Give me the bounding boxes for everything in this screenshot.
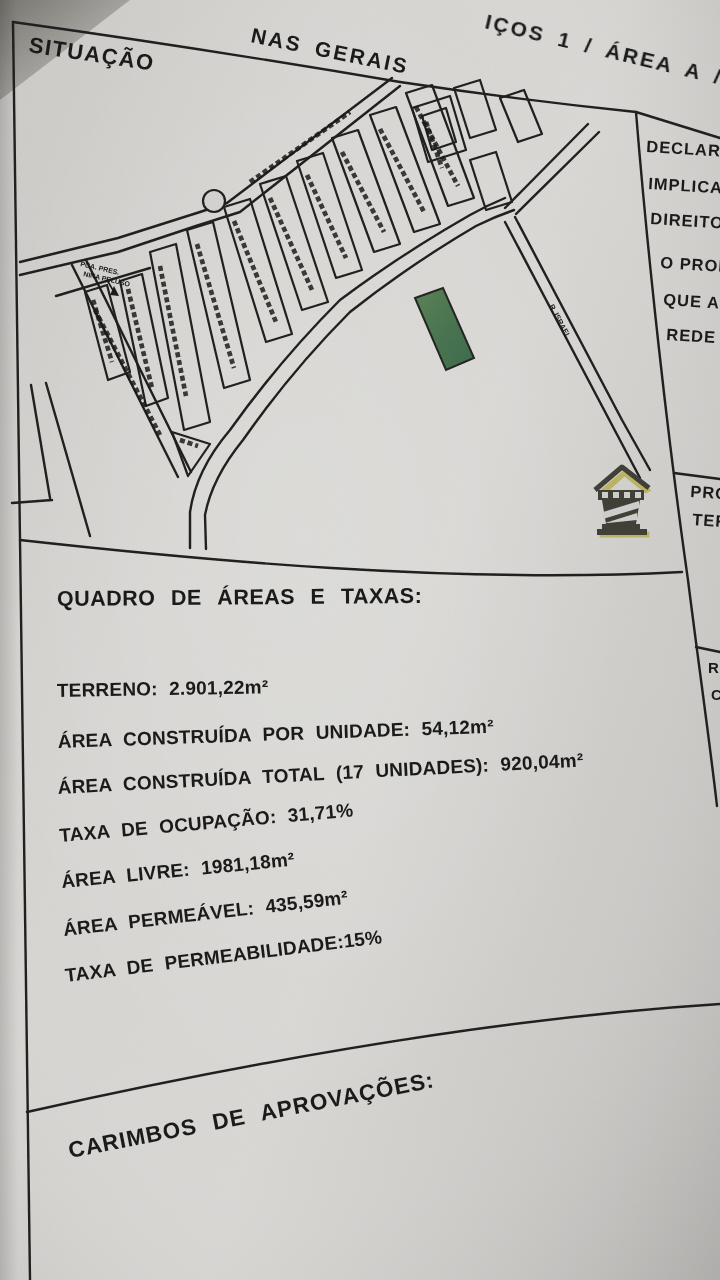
document-photo: PCA. PRES. NINA PELUSO R. ISRAEL NAS GER… — [0, 0, 720, 1280]
site-plan-drawing: PCA. PRES. NINA PELUSO R. ISRAEL NAS GER… — [0, 0, 720, 1280]
paper-grain — [0, 0, 720, 1280]
